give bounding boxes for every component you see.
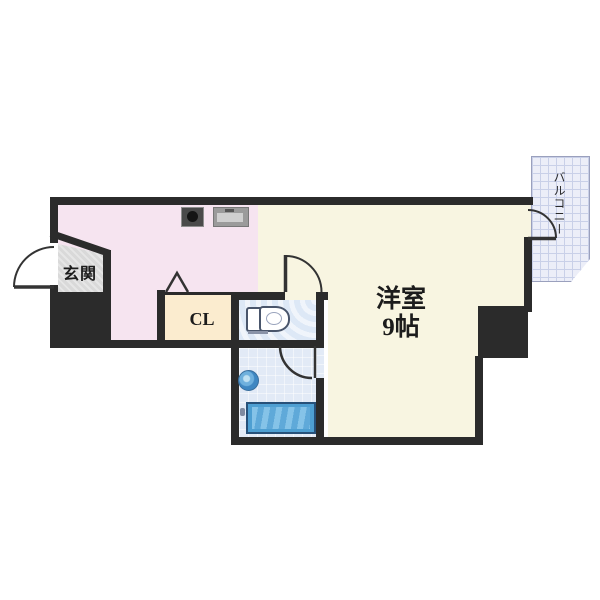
wall-right-lower [475, 356, 483, 445]
entrance-door-arc [14, 247, 54, 287]
wall-closet-toilet [231, 292, 239, 445]
wall-bottom-main [231, 437, 483, 445]
wall-wet-right-lower [316, 378, 324, 445]
doorway-balcony [524, 205, 532, 239]
entrance-label: 玄関 [56, 260, 104, 284]
bathtub-icon [246, 402, 316, 434]
pillar-right [478, 306, 528, 358]
pillar-entrance [56, 292, 103, 342]
sink-basin-icon [217, 213, 243, 222]
stove-icon [181, 207, 204, 227]
balcony-label: バルコニー [551, 171, 568, 276]
main-room-name: 洋室 [355, 286, 447, 314]
wall-toilet-top [238, 292, 285, 300]
stove-burner-icon [187, 211, 198, 222]
wall-top [50, 197, 533, 205]
sink-faucet-icon [225, 209, 234, 212]
bathtub-water [252, 407, 310, 429]
toilet-icon [259, 306, 290, 332]
washbasin-icon [238, 370, 259, 391]
bath-tap-icon [240, 408, 245, 416]
wall-right-upper [524, 237, 532, 312]
main-room-size: 9帖 [355, 314, 447, 342]
floor-plan: バルコニー [0, 0, 600, 600]
wall-wet-right-upper [316, 292, 324, 346]
wall-entrance-right [103, 250, 111, 348]
main-room-label: 洋室 9帖 [355, 286, 447, 341]
closet-label: CL [178, 309, 226, 330]
doorway-bathroom [316, 346, 324, 378]
wall-closet-top-line [164, 292, 238, 295]
wall-closet-left [157, 290, 165, 348]
toilet-base-line [248, 331, 268, 334]
kitchen-sink-icon [213, 207, 249, 227]
balcony: バルコニー [531, 156, 590, 282]
toilet-bowl-inner [266, 312, 282, 325]
